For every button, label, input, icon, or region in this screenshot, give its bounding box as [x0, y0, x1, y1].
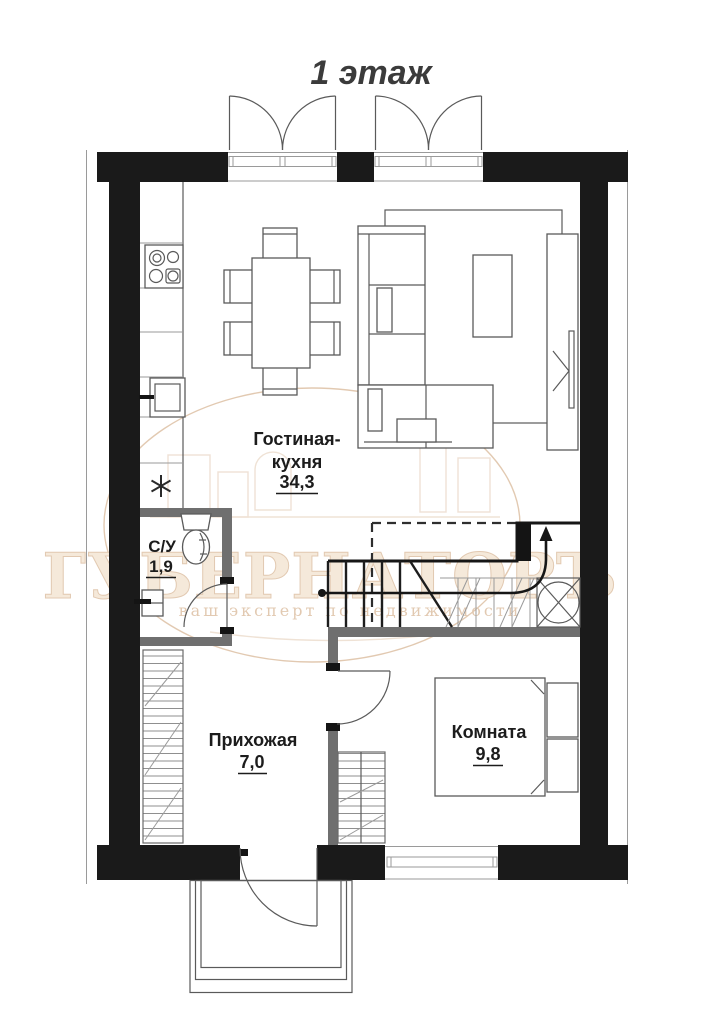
room-name: Гостиная-	[253, 429, 340, 449]
chair-icon	[308, 322, 340, 355]
bed-pillow	[547, 739, 578, 792]
entrance-door	[240, 848, 317, 926]
room-area: 34,3	[279, 472, 314, 492]
dining-table	[252, 258, 310, 368]
room-name: Прихожая	[209, 730, 298, 750]
chair-icon	[224, 270, 256, 303]
room-area: 7,0	[239, 752, 264, 772]
kitchen-counter	[139, 182, 185, 508]
bed-pillow	[547, 683, 578, 737]
room-name: Комната	[452, 722, 528, 742]
stove-icon	[145, 245, 183, 288]
label-living-kitchen: Гостиная- кухня 34,3	[253, 429, 340, 494]
french-door-left	[228, 96, 337, 181]
room-area: 1,9	[149, 557, 173, 576]
dining-table-group	[224, 228, 340, 395]
floor-plan-page: 1 этаж ГУБЕРНАТОРЪ ваш эксперт по недвиж…	[0, 0, 714, 1024]
sofa-pillow	[377, 288, 392, 332]
wardrobe-room	[338, 752, 385, 843]
watermark-tagline: ваш эксперт по недвижимости	[179, 601, 522, 620]
room-name: С/У	[148, 537, 176, 556]
porch-steps	[190, 881, 352, 993]
toilet-icon	[181, 514, 211, 564]
page-title: 1 этаж	[310, 54, 433, 92]
french-door-right	[374, 96, 483, 181]
floor-plan-canvas: 1 этаж ГУБЕРНАТОРЪ ваш эксперт по недвиж…	[0, 0, 714, 1024]
tv-cabinet	[547, 234, 578, 450]
label-hallway: Прихожая 7,0	[209, 730, 298, 774]
sofa-pillow	[368, 389, 382, 431]
chair-icon	[224, 322, 256, 355]
label-bathroom: С/У 1,9	[146, 537, 176, 578]
wardrobe-hallway	[143, 650, 183, 843]
kitchen-sink-icon	[139, 378, 185, 417]
chair-icon	[263, 228, 297, 260]
room-area: 9,8	[475, 744, 500, 764]
chair-icon	[308, 270, 340, 303]
room-name: кухня	[272, 452, 323, 472]
coffee-table	[473, 255, 512, 337]
room-door	[337, 671, 390, 724]
sofa-tray	[397, 419, 436, 442]
stairs-bottom-wall	[328, 627, 580, 637]
window-bottom	[385, 847, 498, 880]
